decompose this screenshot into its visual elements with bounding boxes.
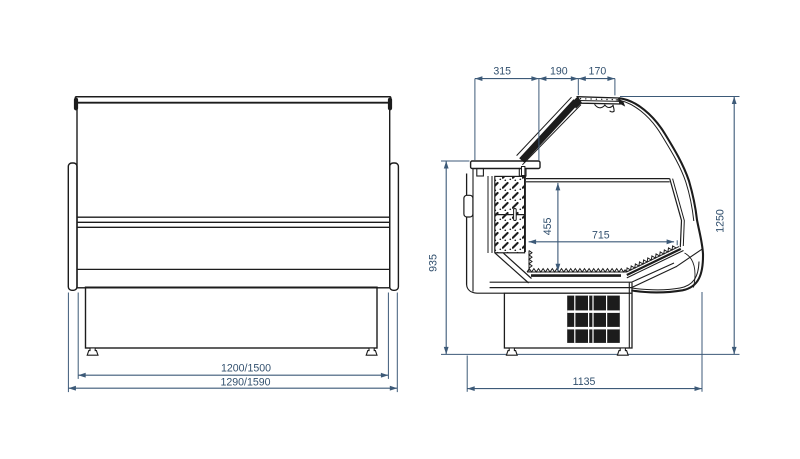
svg-text:1290/1590: 1290/1590: [220, 377, 270, 389]
svg-text:315: 315: [493, 66, 511, 78]
svg-text:715: 715: [592, 230, 610, 242]
svg-text:1135: 1135: [573, 376, 596, 388]
svg-text:935: 935: [428, 254, 440, 272]
svg-text:1200/1500: 1200/1500: [221, 362, 271, 374]
svg-text:170: 170: [589, 66, 607, 78]
svg-text:455: 455: [542, 217, 554, 235]
svg-text:190: 190: [550, 66, 568, 78]
svg-text:1250: 1250: [715, 209, 727, 233]
